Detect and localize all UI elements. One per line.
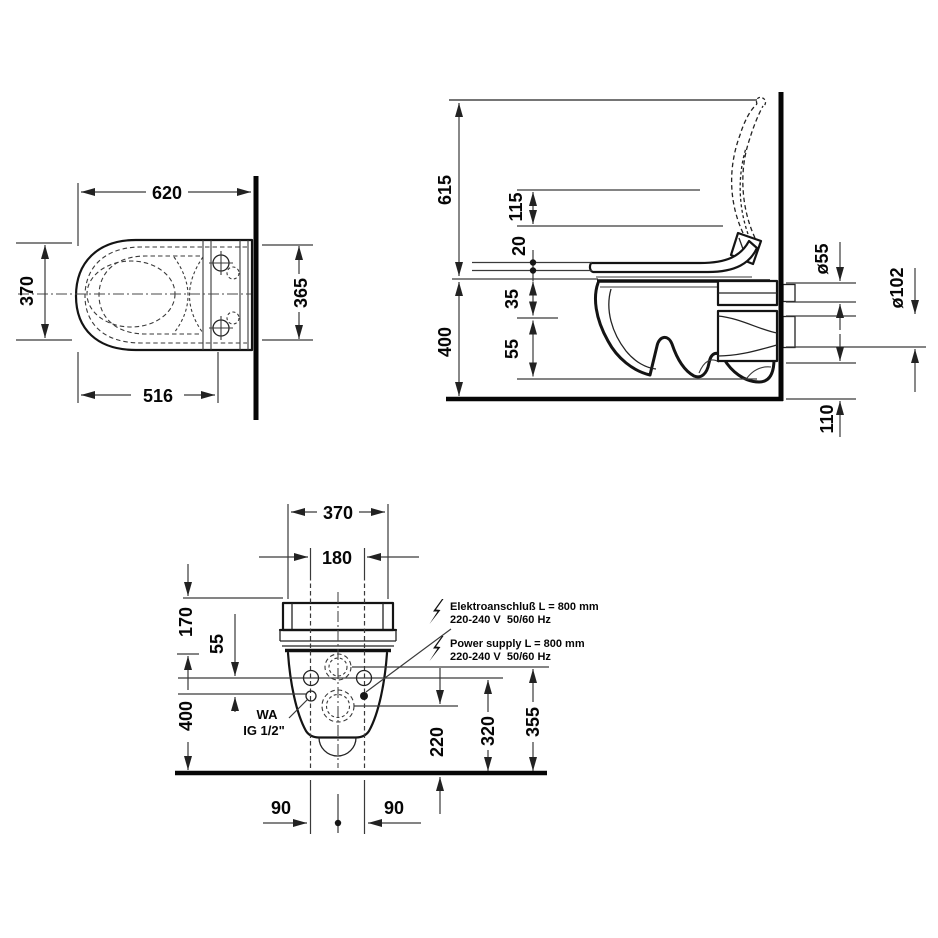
rear-dim-320-label: 320: [478, 716, 498, 746]
plan-dim-620: 620: [78, 183, 251, 246]
side-dim-drain-pipe: ø102: [887, 267, 915, 392]
side-dim-drain-pipe-label: ø102: [887, 267, 907, 308]
rear-dim-355: 355: [523, 669, 543, 771]
plan-seat-contour: [85, 247, 247, 343]
plan-dim-370-label: 370: [17, 276, 37, 306]
electrical-en-line2: 220-240 V 50/60 Hz: [450, 651, 551, 663]
side-dim-615-label: 615: [435, 175, 455, 205]
rear-view: 370 180 170 400 55 220: [175, 503, 599, 834]
plan-hinge-detail2: [190, 257, 204, 333]
side-dim-35: 35: [502, 282, 533, 316]
side-dim-400-label: 400: [435, 327, 455, 357]
plan-seat-inner: [99, 256, 200, 334]
electrical-de-line2: 220-240 V 50/60 Hz: [450, 614, 551, 626]
rear-power-connection: [360, 692, 368, 700]
rear-dim-90-left: 90: [263, 798, 307, 823]
side-dim-400: 400: [435, 282, 459, 396]
side-open-lid-dashed: [732, 97, 766, 238]
side-dim-115: 115: [506, 192, 533, 224]
side-view: 615 400 115 20 35 55: [435, 92, 926, 437]
rear-dim-170-label: 170: [176, 607, 196, 637]
side-dim-55: 55: [502, 321, 533, 377]
rear-dim-220: 220: [427, 668, 447, 814]
side-dim-115-label: 115: [506, 192, 526, 221]
rear-dim-90-right-label: 90: [384, 798, 404, 818]
side-dim-20: 20: [509, 236, 536, 281]
rear-water-label-line2: IG 1/2": [243, 723, 285, 738]
electrical-de-line1: Elektroanschluß L = 800 mm: [450, 601, 599, 613]
plan-hinge-detail: [174, 257, 188, 333]
plan-dim-365: 365: [262, 245, 313, 340]
side-dim-55-label: 55: [502, 339, 522, 359]
rear-water-label: WA IG 1/2": [243, 707, 285, 738]
toilet-installation-drawing: 620 370 365 516: [0, 0, 938, 938]
rear-dim-370-label: 370: [323, 503, 353, 523]
side-bowl-inner: [609, 289, 656, 369]
rear-dim-320: 320: [478, 680, 498, 771]
plan-dim-516-label: 516: [143, 386, 173, 406]
rear-electrical-annotation: Elektroanschluß L = 800 mm 220-240 V 50/…: [430, 599, 599, 663]
rear-dim-90-right: 90: [335, 798, 421, 826]
side-dim-110: 110: [817, 334, 840, 437]
rear-dim-220-label: 220: [427, 727, 447, 757]
side-seat: [590, 241, 757, 272]
electrical-en-line1: Power supply L = 800 mm: [450, 638, 585, 650]
side-dim-615: 615: [435, 103, 459, 276]
side-dim-35-label: 35: [502, 289, 522, 309]
rear-dim-370: 370: [291, 503, 385, 523]
plan-fixing-holes: [209, 251, 239, 340]
rear-water-label-line1: WA: [257, 707, 279, 722]
rear-dim-400: 400: [176, 701, 196, 770]
plan-dim-516: 516: [78, 352, 218, 406]
plan-dim-620-label: 620: [152, 183, 182, 203]
side-dim-supply-pipe-label: ø55: [812, 243, 832, 274]
rear-dim-170: 170: [176, 564, 196, 690]
rear-dim-180-label: 180: [322, 548, 352, 568]
rear-dim-55: 55: [207, 614, 235, 712]
plan-view: 620 370 365 516: [16, 176, 313, 420]
plan-dim-370: 370: [16, 243, 72, 340]
rear-dim-180: 180: [259, 548, 419, 568]
side-dim-supply-pipe: ø55: [812, 242, 840, 330]
plan-dim-365-label: 365: [291, 278, 311, 308]
rear-dim-355-label: 355: [523, 707, 543, 737]
lightning-icon: [430, 599, 444, 624]
rear-dim-90-left-label: 90: [271, 798, 291, 818]
side-dim-110-label: 110: [817, 404, 837, 433]
rear-dim-55-label: 55: [207, 634, 227, 654]
technical-drawing-page: 620 370 365 516: [0, 0, 938, 938]
rear-dim-400-label: 400: [176, 701, 196, 731]
side-dim-20-label: 20: [509, 236, 529, 256]
